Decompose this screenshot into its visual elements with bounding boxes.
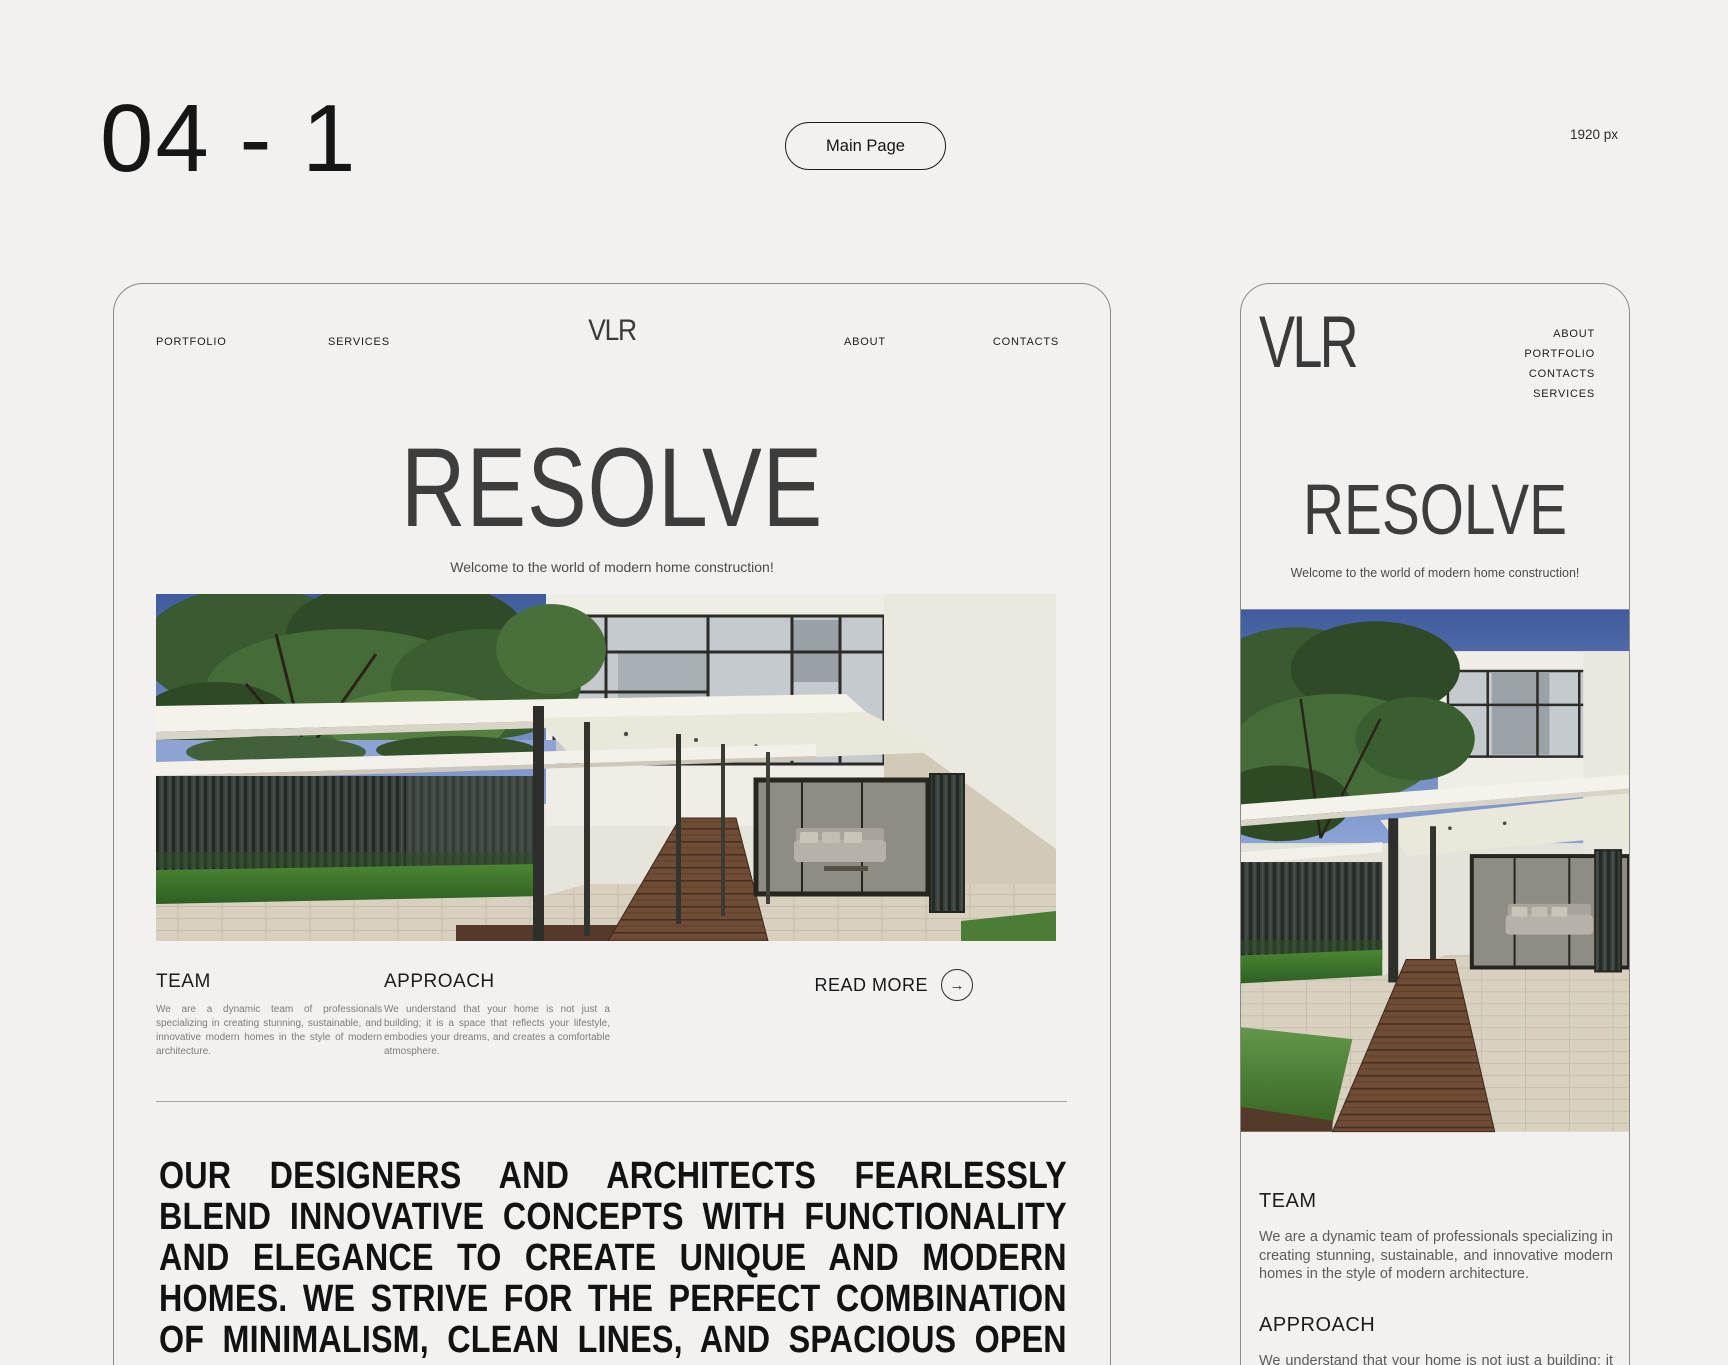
section-body-team-mobile: We are a dynamic team of professionals s… bbox=[1259, 1228, 1613, 1284]
viewport-width-label: 1920 px bbox=[1570, 127, 1618, 142]
slide-index-label: 04 - 1 bbox=[100, 84, 357, 194]
section-heading-team: TEAM bbox=[156, 971, 211, 993]
nav-item-contacts[interactable]: CONTACTS bbox=[1524, 364, 1595, 384]
desktop-hero-image bbox=[156, 594, 1056, 941]
mobile-hero-image bbox=[1241, 608, 1629, 1133]
read-more-link[interactable]: READ MORE → bbox=[814, 969, 973, 1001]
hero-title-mobile: RESOLVE bbox=[1280, 475, 1590, 546]
vlr-logo-mobile[interactable]: VLR bbox=[1259, 306, 1356, 379]
nav-item-about[interactable]: ABOUT bbox=[1524, 324, 1595, 344]
design-board: 04 - 1 Main Page 1920 px PORTFOLIO SERVI… bbox=[0, 0, 1728, 1365]
nav-item-services[interactable]: SERVICES bbox=[328, 336, 390, 348]
nav-item-portfolio[interactable]: PORTFOLIO bbox=[156, 336, 227, 348]
nav-item-services[interactable]: SERVICES bbox=[1524, 384, 1595, 404]
read-more-label: READ MORE bbox=[814, 975, 928, 996]
house-render-illustration-mobile bbox=[1241, 608, 1629, 1133]
hero-title: RESOLVE bbox=[214, 432, 1011, 544]
main-page-button[interactable]: Main Page bbox=[785, 122, 946, 170]
section-body-team: We are a dynamic team of professionals s… bbox=[156, 1003, 382, 1059]
house-render-illustration bbox=[156, 594, 1056, 941]
brand-statement-text: OUR DESIGNERS AND ARCHITECTS FEARLESSLY … bbox=[159, 1156, 1067, 1365]
section-heading-approach-mobile: APPROACH bbox=[1259, 1314, 1375, 1337]
section-heading-team-mobile: TEAM bbox=[1259, 1190, 1317, 1213]
desktop-mockup-frame: PORTFOLIO SERVICES VLR ABOUT CONTACTS RE… bbox=[113, 283, 1111, 1365]
nav-item-contacts[interactable]: CONTACTS bbox=[993, 336, 1059, 348]
arrow-right-icon: → bbox=[941, 969, 973, 1001]
glass-living-room bbox=[756, 780, 928, 894]
hero-subtitle-mobile: Welcome to the world of modern home cons… bbox=[1241, 566, 1629, 580]
mobile-nav: ABOUT PORTFOLIO CONTACTS SERVICES bbox=[1524, 324, 1595, 404]
hero-subtitle: Welcome to the world of modern home cons… bbox=[114, 559, 1110, 575]
section-body-approach-mobile: We understand that your home is not just… bbox=[1259, 1352, 1613, 1365]
mobile-mockup-frame: VLR ABOUT PORTFOLIO CONTACTS SERVICES RE… bbox=[1240, 283, 1630, 1365]
nav-item-about[interactable]: ABOUT bbox=[844, 336, 886, 348]
section-divider bbox=[156, 1101, 1067, 1102]
section-body-approach: We understand that your home is not just… bbox=[384, 1003, 610, 1059]
nav-item-portfolio[interactable]: PORTFOLIO bbox=[1524, 344, 1595, 364]
section-heading-approach: APPROACH bbox=[384, 971, 495, 993]
vlr-logo[interactable]: VLR bbox=[588, 316, 635, 346]
